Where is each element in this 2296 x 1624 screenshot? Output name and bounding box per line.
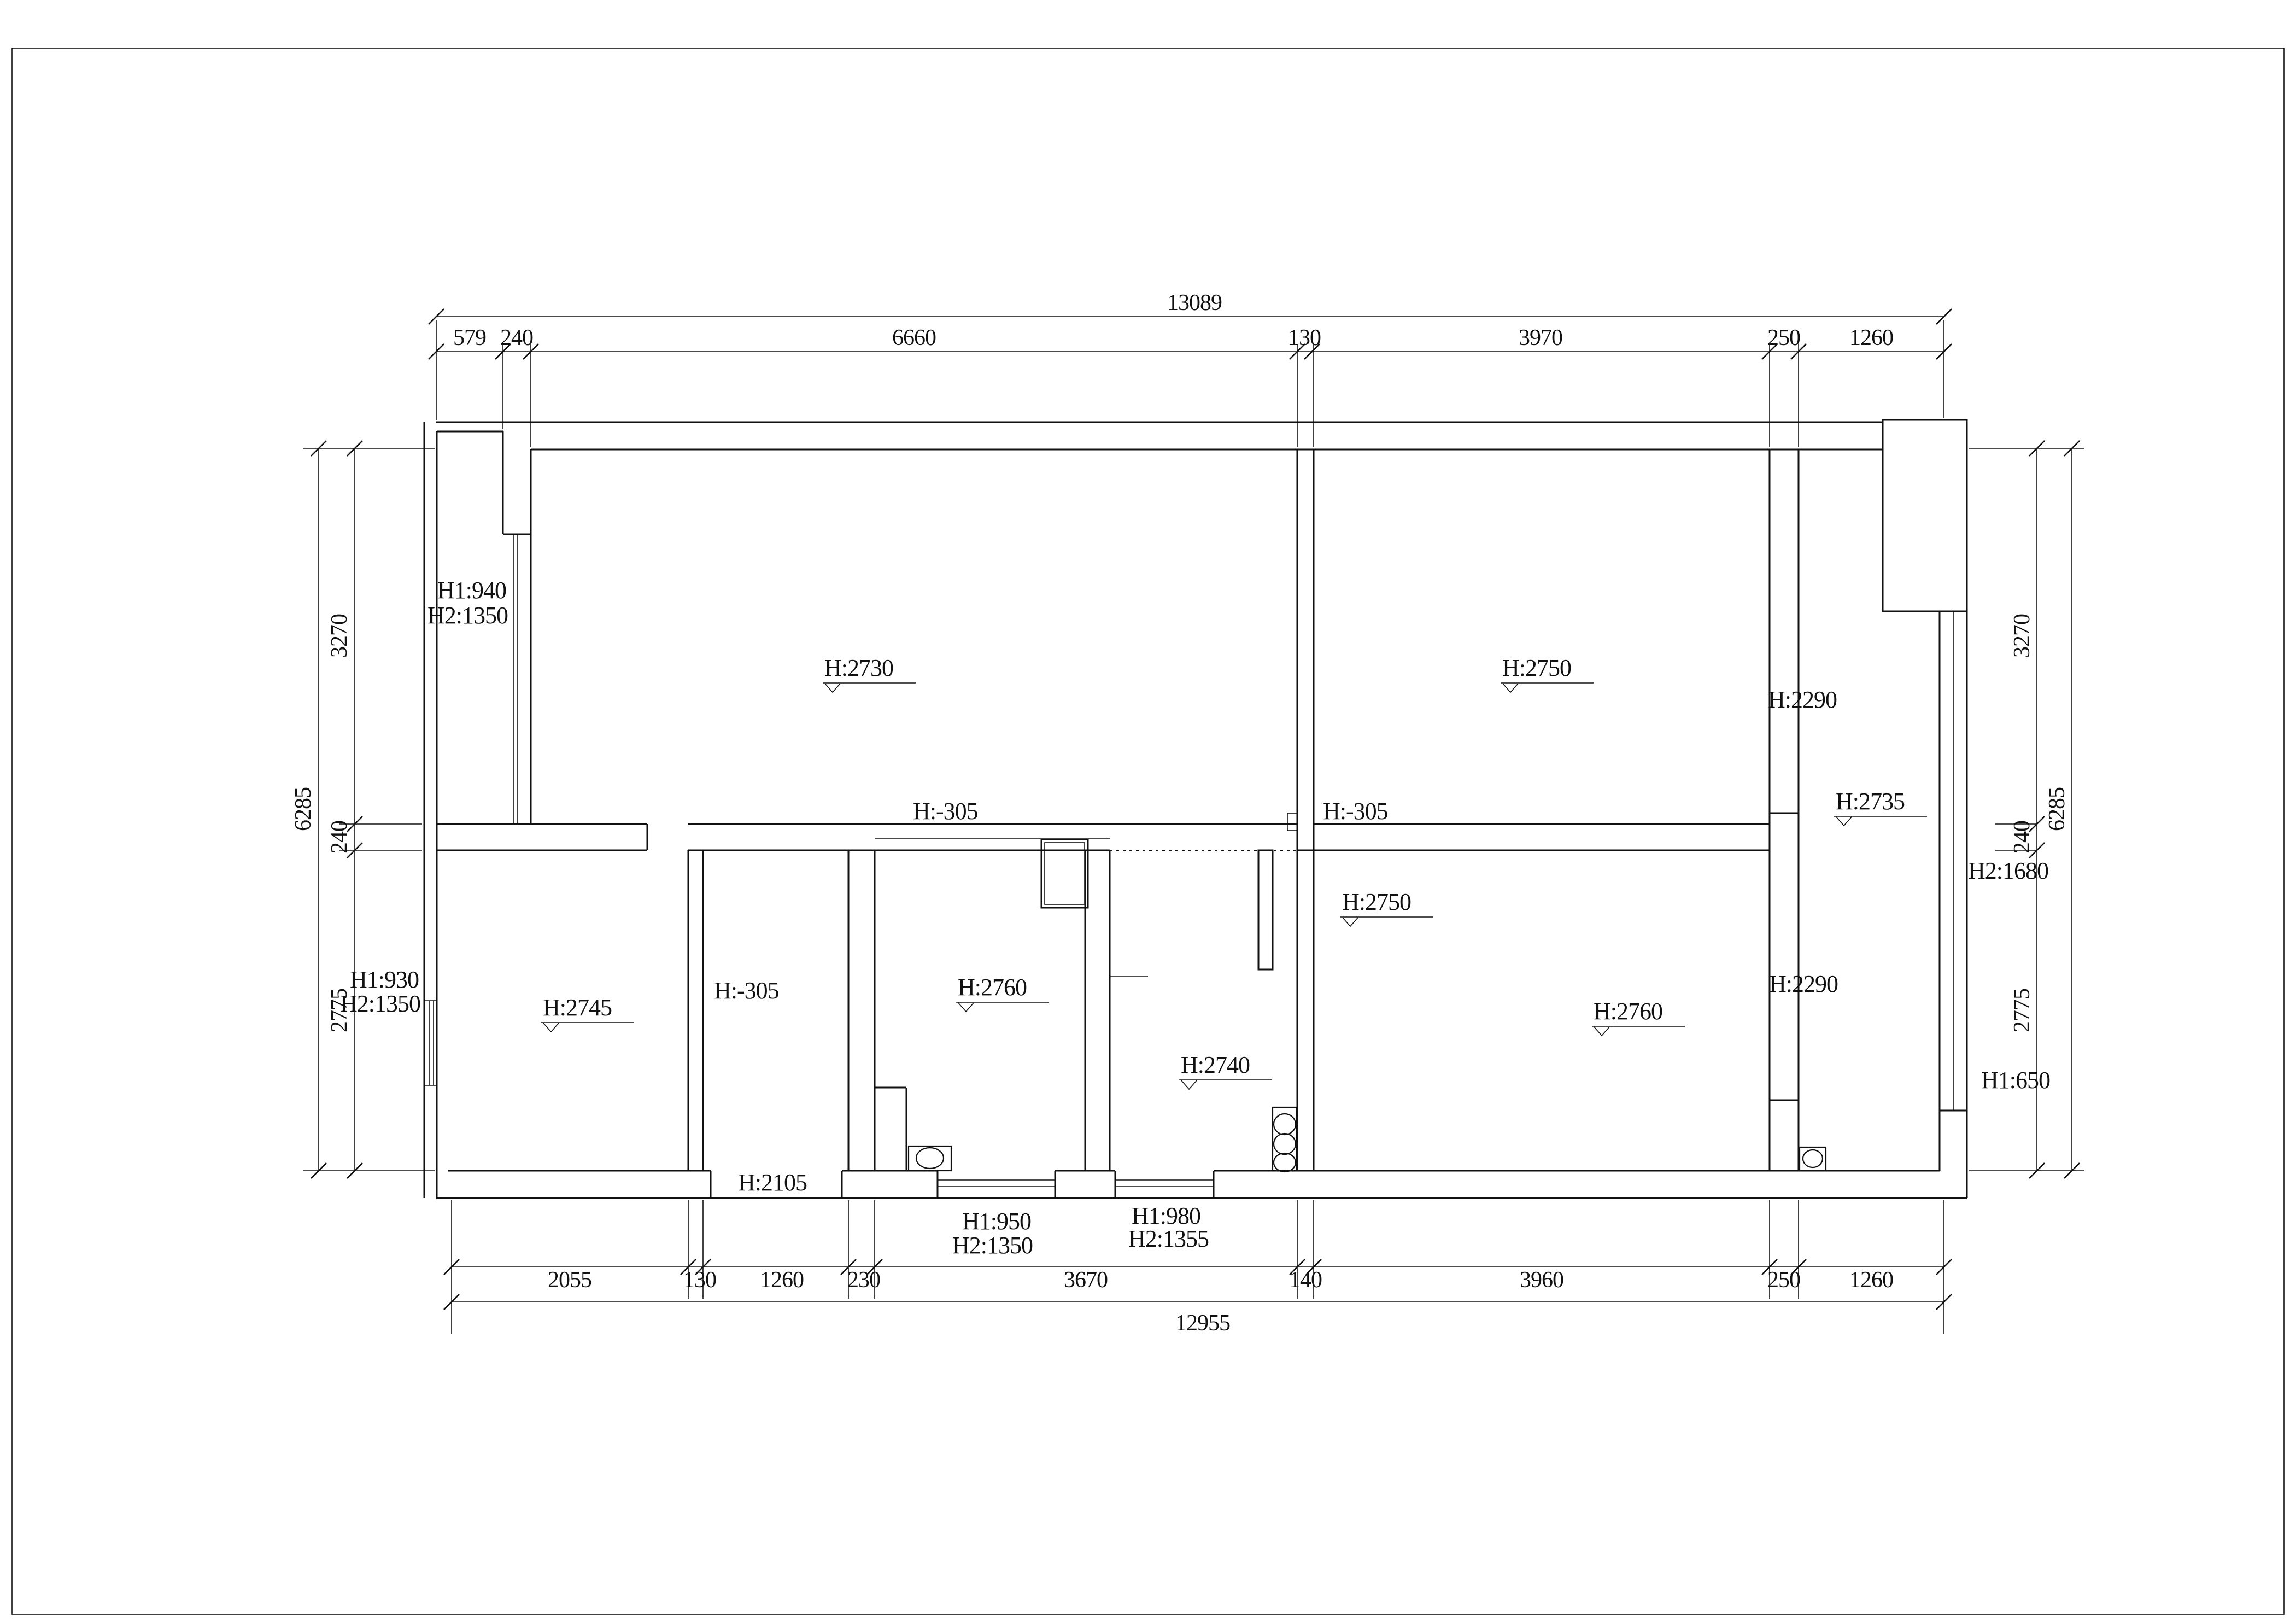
dimension-text: 13089 579 240 6660 130 3970 250 1260 205… xyxy=(291,290,2070,1336)
dim-bottom-4: 3670 xyxy=(1064,1267,1108,1293)
note-right-upper: H2:1680 xyxy=(1968,857,2048,884)
floor-plan-canvas: H:2730 H:2750 H:2290 H:2735 H:-305 H:-30… xyxy=(0,0,2296,1624)
dim-left-0: 3270 xyxy=(327,614,352,658)
drawing-sheet: H:2730 H:2750 H:2290 H:2735 H:-305 H:-30… xyxy=(0,0,2296,1624)
note-bottom-a-h1: H1:950 xyxy=(962,1208,1031,1235)
level-kitchen: H:2760 xyxy=(958,974,1027,1001)
note-bottom-a-h2: H2:1350 xyxy=(952,1232,1033,1259)
level-entry-drop: H:-305 xyxy=(714,977,779,1004)
dim-left-1: 240 xyxy=(327,821,352,854)
level-corridor-top: H:2290 xyxy=(1768,686,1837,713)
note-left-h2: H2:1350 xyxy=(340,990,420,1017)
dim-bottom-8: 1260 xyxy=(1849,1267,1893,1293)
dim-bottom-6: 3960 xyxy=(1520,1267,1563,1293)
bottom-window-b xyxy=(1115,1171,1214,1198)
level-upper-right-room: H:2750 xyxy=(1502,655,1571,681)
dim-top-4: 3970 xyxy=(1519,325,1562,350)
dim-top-5: 250 xyxy=(1767,325,1800,350)
dim-top-6: 1260 xyxy=(1849,325,1893,350)
note-bay-h2: H2:1350 xyxy=(427,602,508,629)
dim-right-total: 6285 xyxy=(2045,787,2070,831)
dim-right-1: 240 xyxy=(2010,821,2035,854)
dim-left-2: 2775 xyxy=(327,989,352,1032)
note-bottom-b-h2: H2:1355 xyxy=(1128,1225,1209,1252)
level-entry-door: H:2105 xyxy=(738,1169,807,1196)
dim-bottom-0: 2055 xyxy=(548,1267,591,1293)
pipe-risers xyxy=(1273,1107,1297,1172)
level-drop-right: H:-305 xyxy=(1323,798,1388,825)
dim-right-2: 2775 xyxy=(2010,989,2035,1032)
floor-drain-kitchen xyxy=(909,1146,951,1171)
dim-bottom-5: 140 xyxy=(1289,1267,1322,1293)
dim-top-total: 13089 xyxy=(1167,290,1222,316)
dim-bottom-total: 12955 xyxy=(1175,1311,1230,1336)
window-height-notes: H1:940 H2:1350 H1:930 H2:1350 H2:1680 H1… xyxy=(340,577,2050,1259)
dim-bottom-2: 1260 xyxy=(760,1267,804,1293)
bottom-window-a xyxy=(938,1171,1055,1198)
level-left-room: H:2745 xyxy=(543,994,612,1021)
level-corridor-mid: H:2735 xyxy=(1836,788,1905,815)
level-marks xyxy=(541,683,1927,1089)
level-drop-left: H:-305 xyxy=(913,798,978,825)
dim-bottom-1: 130 xyxy=(683,1267,716,1293)
fixtures xyxy=(909,1107,1826,1172)
sheet-border xyxy=(12,48,2284,1614)
level-upper-left-room: H:2730 xyxy=(824,655,893,681)
dim-top-2: 6660 xyxy=(892,325,936,350)
interior-walls xyxy=(437,449,1799,1171)
hall-wall-stub xyxy=(1258,850,1273,969)
dim-bottom-3: 230 xyxy=(847,1267,880,1293)
dim-bottom-7: 250 xyxy=(1767,1267,1800,1293)
dim-top-3: 130 xyxy=(1288,325,1321,350)
level-center-room: H:2750 xyxy=(1342,889,1411,915)
dim-top-0: 579 xyxy=(453,325,486,350)
level-lower-right-room: H:2760 xyxy=(1594,998,1662,1025)
level-hall: H:2740 xyxy=(1181,1051,1250,1078)
dim-top-1: 240 xyxy=(500,325,533,350)
dim-right-0: 3270 xyxy=(2010,614,2035,658)
central-wall-jog xyxy=(1287,813,1297,831)
note-right-lower: H1:650 xyxy=(1981,1067,2050,1094)
note-bay-h1: H1:940 xyxy=(437,577,506,604)
right-top-block xyxy=(1883,420,1967,611)
left-window xyxy=(424,1001,437,1085)
note-left-h1: H1:930 xyxy=(350,966,419,993)
level-corridor-bottom: H:2290 xyxy=(1769,971,1838,997)
room-level-labels: H:2730 H:2750 H:2290 H:2735 H:-305 H:-30… xyxy=(543,655,1905,1196)
floor-drain-corridor xyxy=(1800,1147,1826,1171)
dim-left-total: 6285 xyxy=(291,787,316,831)
